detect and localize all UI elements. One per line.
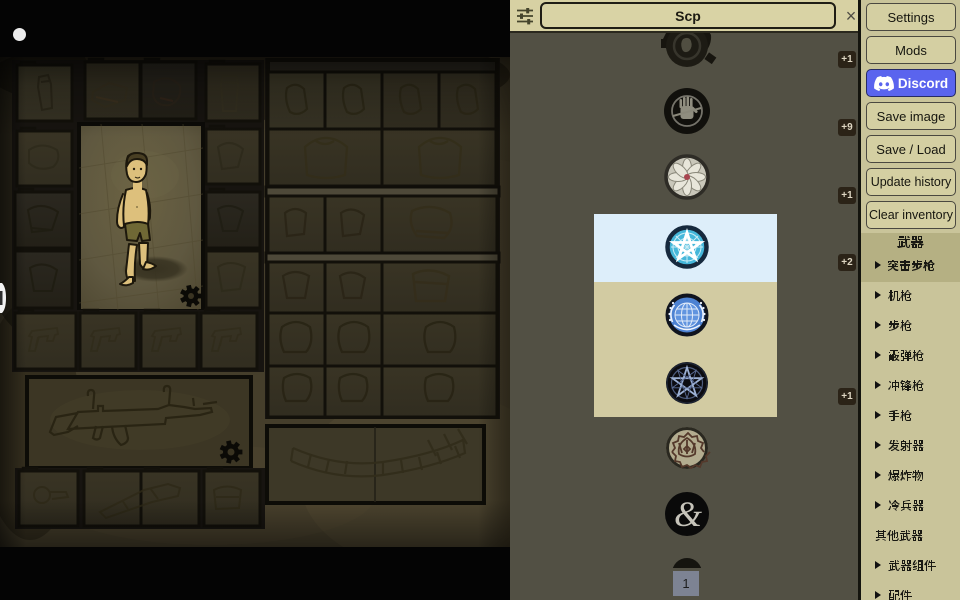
svg-text:&: &	[674, 494, 702, 534]
